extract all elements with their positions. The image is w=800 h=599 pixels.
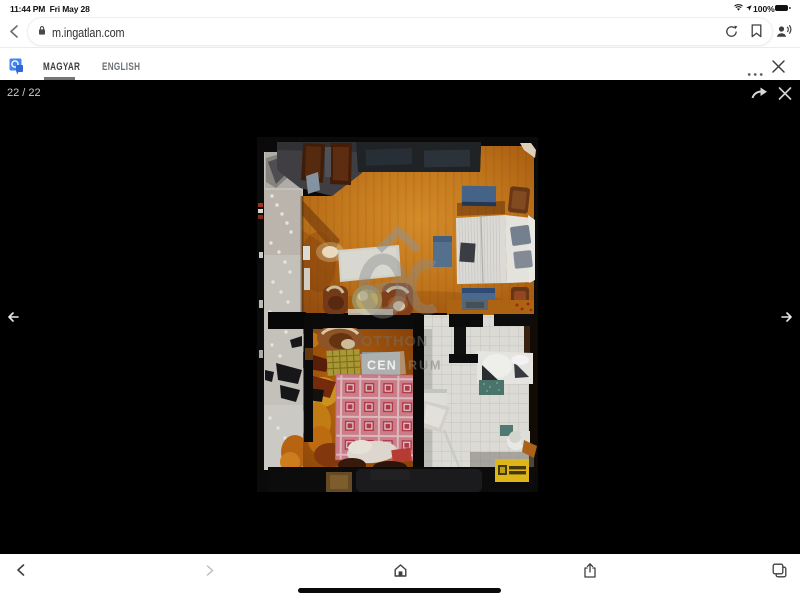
svg-text:OTTHON: OTTHON bbox=[361, 334, 428, 350]
svg-text:CEN: CEN bbox=[367, 359, 397, 373]
svg-text:RUM: RUM bbox=[408, 359, 442, 373]
